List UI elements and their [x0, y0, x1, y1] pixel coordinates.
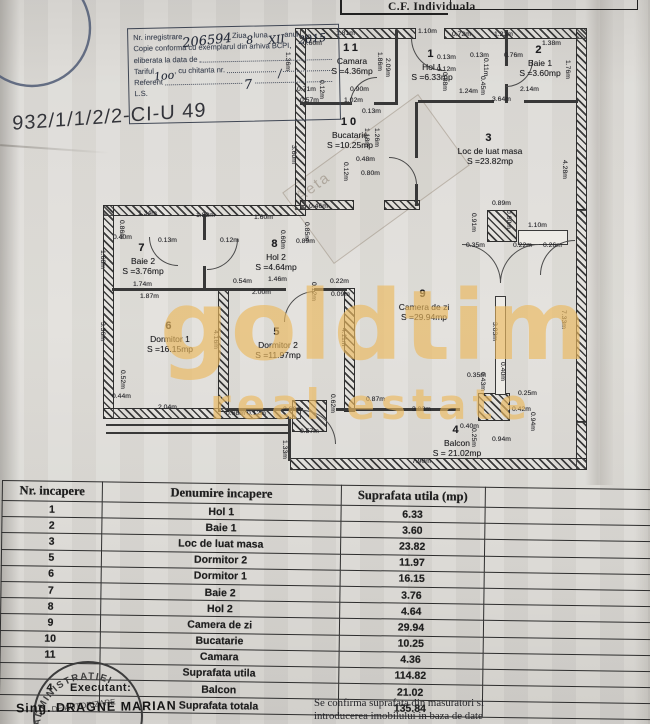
room-number: 6: [147, 320, 193, 334]
reg-luna-handwritten: XII: [268, 39, 284, 41]
reg-ziua-handwritten: 8: [247, 41, 254, 42]
room-label: 8 Hol 2 S =4.64mp: [255, 238, 296, 273]
room-area: S =4.64mp: [255, 262, 296, 273]
room-name: Dormitor 2: [255, 340, 300, 351]
terrace-line: [106, 432, 290, 434]
cell-room-number: 3: [2, 533, 102, 551]
dimension-label: 3.36m: [99, 322, 106, 341]
confirmation-line-1: Se confirma suprafata din masuratori si: [314, 697, 594, 710]
room-name: Hol 2: [255, 252, 296, 263]
cf-header-vline: [340, 0, 342, 13]
header-empty: [485, 487, 650, 510]
cell-room-area: 29.94: [339, 619, 483, 637]
room-label: 5 Dormitor 2 S =11.97mp: [255, 326, 300, 361]
dimension-label: 0.11m: [482, 58, 489, 76]
wall: [218, 288, 229, 412]
dimension-label: 1.38m: [542, 40, 561, 47]
cell-room-area: 16.15: [340, 570, 484, 588]
scanned-document-page: { "notary_stamp": { "arc_side": "N-NOTAR…: [0, 0, 650, 720]
dimension-label: 0.88m: [441, 72, 448, 91]
door-arc: [302, 410, 336, 444]
reg-tarif-handwritten: 1oo: [154, 75, 174, 77]
dimension-label: 1.26m: [373, 128, 380, 147]
dimension-label: 0.76m: [504, 52, 523, 59]
dimension-label: 0.45m: [479, 76, 486, 95]
dimension-label: 0.80m: [361, 170, 380, 177]
dimension-label: 1.23m: [494, 31, 513, 38]
partition: [415, 184, 418, 206]
dimension-label: 0.87m: [366, 396, 385, 403]
cell-room-number: 1: [2, 501, 102, 519]
partition: [336, 408, 460, 411]
dimension-label: 1.10m: [418, 28, 437, 35]
cell-room-area: 11.97: [340, 554, 484, 572]
dimension-label: 0.43m: [479, 372, 486, 391]
dimension-label: 0.25m: [470, 428, 477, 447]
dimension-label: 1.68m: [99, 250, 106, 269]
confirmation-line-2: introducerea imobilului in baza de date: [314, 710, 594, 723]
dimension-label: 3.03m: [412, 406, 431, 413]
dimension-label: 0.91m: [470, 213, 477, 232]
dimension-label: 0.12m: [310, 282, 317, 301]
reg-chitanta-label: , cu chitanta nr.: [174, 64, 225, 76]
cell-room-area: 4.36: [338, 651, 482, 669]
dimension-label: 0.48m: [356, 156, 375, 163]
dimension-label: 0.35m: [466, 242, 485, 249]
room-number: 7: [122, 242, 163, 256]
door-arc: [462, 244, 501, 283]
cell-room-area: 4.64: [339, 602, 483, 620]
cell-room-number: 8: [1, 598, 101, 616]
partition: [415, 102, 418, 158]
reg-ziua-label: Ziua: [232, 30, 247, 42]
cell-room-number: 2: [2, 517, 102, 535]
cell-room-area: 23.82: [340, 538, 484, 556]
dimension-label: 1.10m: [528, 222, 547, 229]
dimension-label: 7.90m: [412, 458, 431, 465]
reg-luna-label: luna: [253, 29, 267, 41]
header-nr-incapere: Nr. incapere: [2, 481, 102, 502]
dimension-label: 1.02m: [344, 97, 363, 104]
dimension-label: 3.60m: [290, 145, 297, 164]
dimension-label: 0.52m: [119, 370, 126, 389]
dimension-label: 2.09m: [384, 58, 391, 77]
cell-room-number: 6: [1, 565, 101, 583]
cf-header-underline: [340, 13, 448, 15]
cell-room-number: 9: [0, 614, 100, 632]
room-label: 6 Dormitor 1 S =16.15mp: [147, 320, 193, 355]
dimension-label: 0.90m: [350, 86, 369, 93]
dimension-label: 0.62m: [329, 394, 336, 413]
dimension-label: 2.04m: [158, 404, 177, 411]
room-area: S =3.76mp: [122, 266, 163, 277]
dimension-label: 0.94m: [492, 436, 511, 443]
cell-room-area: 6.33: [341, 505, 485, 523]
dimension-label: 1.34m: [138, 210, 157, 217]
dimension-label: 0.13m: [362, 108, 381, 115]
room-number: 3: [458, 132, 523, 146]
dimension-label: 0.94m: [529, 412, 536, 431]
cell-room-area: 3.76: [339, 586, 483, 604]
dimension-label: 1.74m: [133, 281, 152, 288]
dimension-label: 0.60m: [279, 230, 286, 249]
dimension-label: 3.64m: [492, 96, 511, 103]
wall: [344, 288, 355, 412]
dimension-label: 1.60m: [254, 214, 273, 221]
cell-room-area: 114.82: [338, 667, 482, 685]
dimension-label: 4.28m: [561, 160, 568, 179]
room-label: 9 Camera de zi S =29.94mp: [399, 288, 450, 323]
partition: [524, 100, 578, 103]
door-arc: [389, 157, 417, 185]
reg-nr-handwritten: 206594: [183, 39, 232, 44]
dotted-line: [227, 71, 276, 73]
dotted-line: [165, 83, 242, 86]
dimension-label: 0.54m: [233, 278, 252, 285]
dimension-label: 0.22m: [513, 242, 532, 249]
dimension-label: 1.46m: [268, 276, 287, 283]
room-name: Dormitor 1: [147, 334, 193, 345]
dimension-label: 0.60m: [505, 210, 512, 229]
room-area: S = 21.02mp: [433, 448, 481, 459]
dimension-label: 1.33m: [281, 440, 288, 459]
door-arc: [500, 244, 539, 283]
header-suprafata-utila: Suprafata utila (mp): [341, 485, 485, 507]
room-area: S =23.82mp: [458, 156, 523, 167]
dimension-label: 0.68m: [226, 410, 245, 417]
cell-room-number: 7: [1, 581, 101, 599]
room-area: S =11.97mp: [255, 350, 300, 361]
cf-header-empty-cell: [450, 0, 638, 10]
dimension-label: 0.22m: [330, 278, 349, 285]
dimension-label: 0.44m: [112, 393, 131, 400]
room-number: 8: [255, 238, 296, 252]
wall-balcony-edge: [290, 458, 587, 470]
room-number: 9: [399, 288, 450, 302]
dimension-label: 4.16m: [212, 330, 219, 349]
pillar: [487, 210, 517, 242]
terrace-line: [106, 424, 290, 426]
cell-room-area: 10.25: [339, 635, 483, 653]
reg-referent-handwritten: 7: [245, 85, 253, 86]
dimension-label: 0.89m: [296, 238, 315, 245]
stamp-circle: [0, 0, 90, 86]
executant-name: Sing. DRAGNE MARIAN: [16, 699, 177, 716]
dimension-label: 2.14m: [520, 86, 539, 93]
cell-room-number: 5: [1, 549, 101, 567]
dimension-label: 0.86m: [118, 220, 125, 239]
dimension-label: 0.89m: [492, 200, 511, 207]
room-number: 5: [255, 326, 300, 340]
room-area: S =29.94mp: [399, 312, 450, 323]
room-label: 7 Baie 2 S =3.76mp: [122, 242, 163, 277]
dimension-label: 0.26m: [543, 242, 562, 249]
notary-round-stamp: N-NOTAR TI: [0, 0, 118, 104]
dimension-label: 1.24m: [459, 88, 478, 95]
reg-tarif-label: Tariful: [134, 65, 154, 77]
reg-anul-label: anul: [284, 29, 298, 41]
dimension-label: 0.72m: [452, 31, 471, 38]
room-area: S =3.60mp: [519, 68, 560, 79]
dimension-label: 1.18m: [363, 128, 370, 147]
dimension-label: 0.13m: [158, 237, 177, 244]
dimension-label: 3.03m: [491, 322, 498, 341]
dimension-label: 1.83m: [196, 212, 215, 219]
partition: [395, 30, 398, 103]
dimension-label: 2.60m: [283, 406, 302, 413]
dimension-label: 0.09m: [331, 291, 350, 298]
room-label: 3 Loc de luat masa S =23.82mp: [458, 132, 523, 167]
cell-room-area: 3.60: [340, 521, 484, 539]
dimension-label: 2.00m: [252, 289, 271, 296]
dimension-label: 0.57m: [300, 428, 319, 435]
dimension-label: 4.11m: [340, 328, 347, 346]
dimension-label: 0.12m: [342, 162, 349, 181]
wall: [576, 28, 587, 211]
dimension-label: 0.13m: [437, 54, 456, 61]
dimension-label: 0.40m: [499, 362, 506, 381]
dimension-label: 1.87m: [140, 293, 159, 300]
room-label: 2 Baie 1 S =3.60mp: [519, 44, 560, 79]
stamp-arc-text: ADMINISTRATIEI: [32, 671, 114, 724]
dimension-label: 1.76m: [564, 60, 571, 79]
reg-anul-handwritten: 2015: [299, 38, 327, 41]
wall: [576, 209, 587, 423]
room-name: Loc de luat masa: [458, 146, 523, 157]
room-name: Baie 1: [519, 58, 560, 69]
room-name: Camera de zi: [399, 302, 450, 313]
dotted-line: [283, 70, 332, 72]
dimension-label: 0.12m: [220, 237, 239, 244]
dimension-label: 0.12m: [247, 410, 266, 417]
registration-stamp: Nr. inregistrare 206594 Ziua 8 luna XII …: [127, 24, 341, 124]
dimension-label: 1.86m: [376, 52, 383, 71]
pillar: [478, 393, 510, 421]
room-name: Baie 2: [122, 256, 163, 267]
dimension-label: 0.25m: [518, 390, 537, 397]
cell-room-number: 10: [0, 630, 100, 648]
dimension-label: 7.33m: [560, 310, 567, 329]
partition: [374, 102, 398, 105]
partition: [418, 100, 494, 103]
executant-label: Executant:: [70, 682, 131, 694]
room-area: S =16.15mp: [147, 344, 193, 355]
dimension-label: 0.46m: [309, 203, 328, 210]
